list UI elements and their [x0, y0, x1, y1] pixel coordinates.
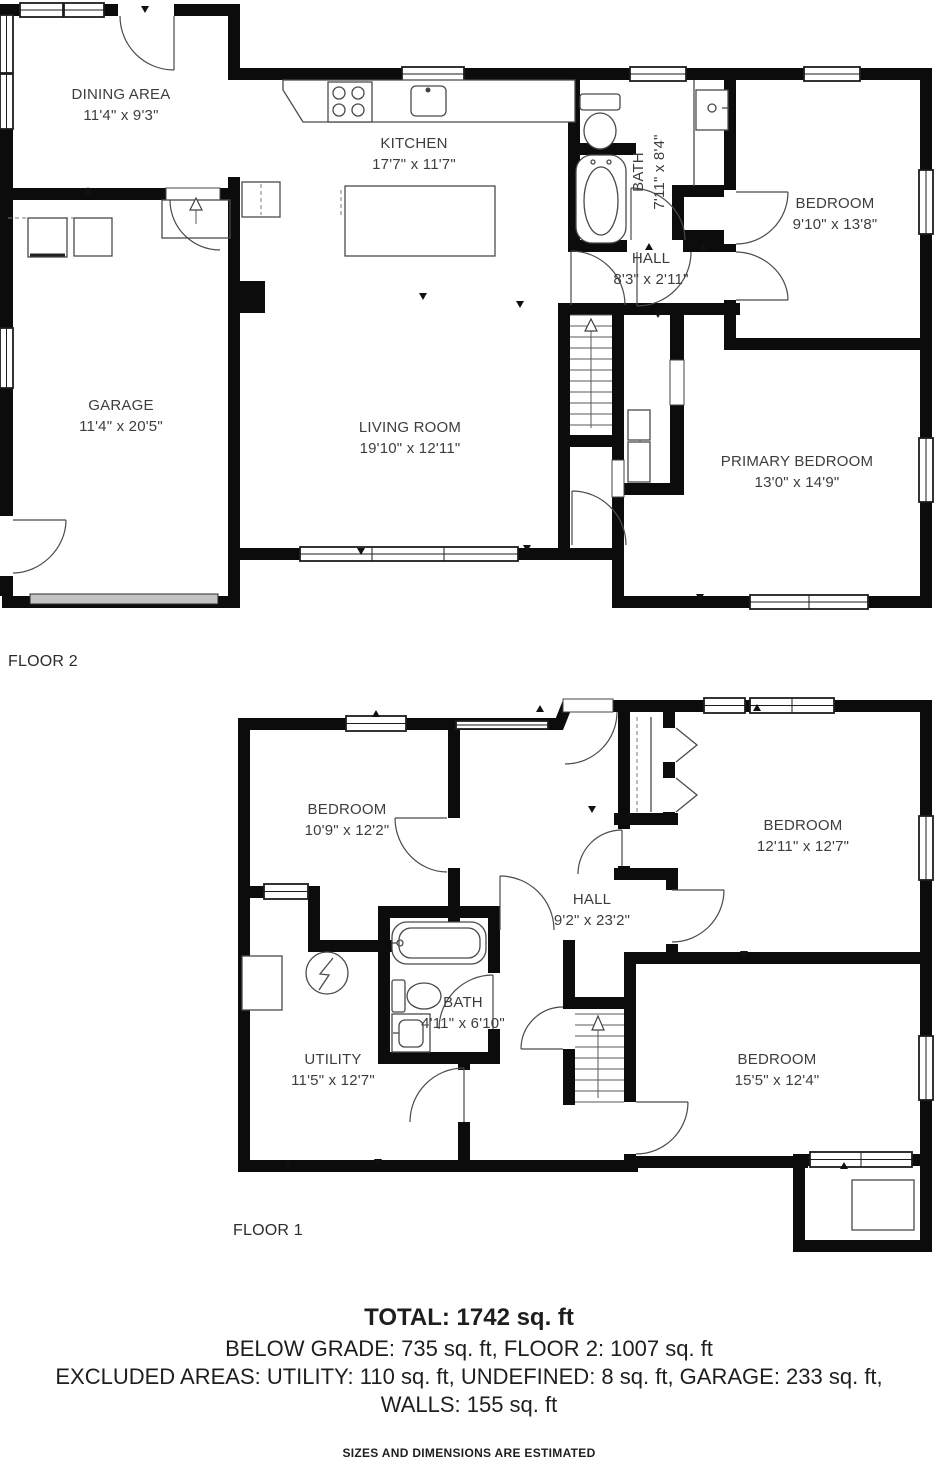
summary-walls: WALLS: 155 sq. ft — [0, 1392, 938, 1418]
room-name: BEDROOM — [305, 799, 390, 820]
floor1-plan — [238, 698, 933, 1252]
staircase-icon — [570, 315, 612, 428]
room-name: BATH — [628, 134, 649, 209]
garage-door-icon — [30, 594, 218, 604]
room-label-bedroom-3: BEDROOM 15'5" x 12'4" — [735, 1049, 820, 1091]
room-label-bedroom-2: BEDROOM 12'11" x 12'7" — [757, 815, 849, 857]
room-dims: 19'10" x 12'11" — [359, 438, 461, 459]
porch-step-icon — [852, 1180, 914, 1230]
utility-fixtures-icon — [242, 952, 348, 1010]
room-dims: 7'11" x 8'4" — [649, 134, 670, 209]
summary-excluded-areas: EXCLUDED AREAS: UTILITY: 110 sq. ft, UND… — [0, 1364, 938, 1390]
room-dims: 10'9" x 12'2" — [305, 820, 390, 841]
room-name: PRIMARY BEDROOM — [721, 451, 873, 472]
room-dims: 15'5" x 12'4" — [735, 1070, 820, 1091]
room-dims: 13'0" x 14'9" — [721, 472, 873, 493]
staircase-icon — [575, 1014, 624, 1102]
room-name: BATH — [421, 992, 505, 1013]
room-label-bath-lower: BATH 4'11" x 6'10" — [421, 992, 505, 1034]
room-name: BEDROOM — [793, 193, 878, 214]
room-label-hall-lower: HALL 9'2" x 23'2" — [554, 889, 630, 931]
floorplan-page: DINING AREA 11'4" x 9'3" KITCHEN 17'7" x… — [0, 0, 938, 1466]
room-dims: 9'10" x 13'8" — [793, 214, 878, 235]
room-name: LIVING ROOM — [359, 417, 461, 438]
room-dims: 11'5" x 12'7" — [291, 1070, 375, 1091]
room-dims: 11'4" x 9'3" — [72, 105, 171, 126]
room-name: BEDROOM — [735, 1049, 820, 1070]
room-name: UTILITY — [291, 1049, 375, 1070]
room-label-bath-upper: BATH 7'11" x 8'4" — [628, 134, 670, 209]
room-name: DINING AREA — [72, 84, 171, 105]
room-dims: 4'11" x 6'10" — [421, 1013, 505, 1034]
room-label-dining-area: DINING AREA 11'4" x 9'3" — [72, 84, 171, 126]
water-heater-icon — [306, 952, 348, 994]
room-label-garage: GARAGE 11'4" x 20'5" — [79, 395, 163, 437]
room-label-utility: UTILITY 11'5" x 12'7" — [291, 1049, 375, 1091]
room-label-primary-bedroom: PRIMARY BEDROOM 13'0" x 14'9" — [721, 451, 873, 493]
room-name: KITCHEN — [372, 133, 456, 154]
room-label-bedroom-1: BEDROOM 10'9" x 12'2" — [305, 799, 390, 841]
toilet-icon — [580, 94, 620, 110]
room-dims: 12'11" x 12'7" — [757, 836, 849, 857]
closet-icon — [628, 410, 650, 482]
room-label-hall-upper: HALL 8'3" x 2'11" — [613, 248, 688, 290]
kitchen-island-icon — [345, 186, 495, 256]
room-dims: 11'4" x 20'5" — [79, 416, 163, 437]
toilet-icon — [392, 980, 405, 1012]
appliance-icon — [242, 956, 282, 1010]
room-name: BEDROOM — [757, 815, 849, 836]
summary-disclaimer: SIZES AND DIMENSIONS ARE ESTIMATED — [0, 1446, 938, 1460]
room-dims: 9'2" x 23'2" — [554, 910, 630, 931]
room-label-kitchen: KITCHEN 17'7" x 11'7" — [372, 133, 456, 175]
room-label-bedroom-upper: BEDROOM 9'10" x 13'8" — [793, 193, 878, 235]
bath-sink-icon — [696, 90, 728, 130]
floor2-tag: FLOOR 2 — [8, 653, 78, 671]
room-dims: 8'3" x 2'11" — [613, 269, 688, 290]
room-name: GARAGE — [79, 395, 163, 416]
summary-total: TOTAL: 1742 sq. ft — [0, 1304, 938, 1332]
summary-below-grade: BELOW GRADE: 735 sq. ft, FLOOR 2: 1007 s… — [0, 1336, 938, 1362]
room-dims: 17'7" x 11'7" — [372, 154, 456, 175]
floor1-tag: FLOOR 1 — [233, 1222, 303, 1240]
stove-icon — [328, 82, 372, 122]
room-label-living-room: LIVING ROOM 19'10" x 12'11" — [359, 417, 461, 459]
room-name: HALL — [613, 248, 688, 269]
room-name: HALL — [554, 889, 630, 910]
